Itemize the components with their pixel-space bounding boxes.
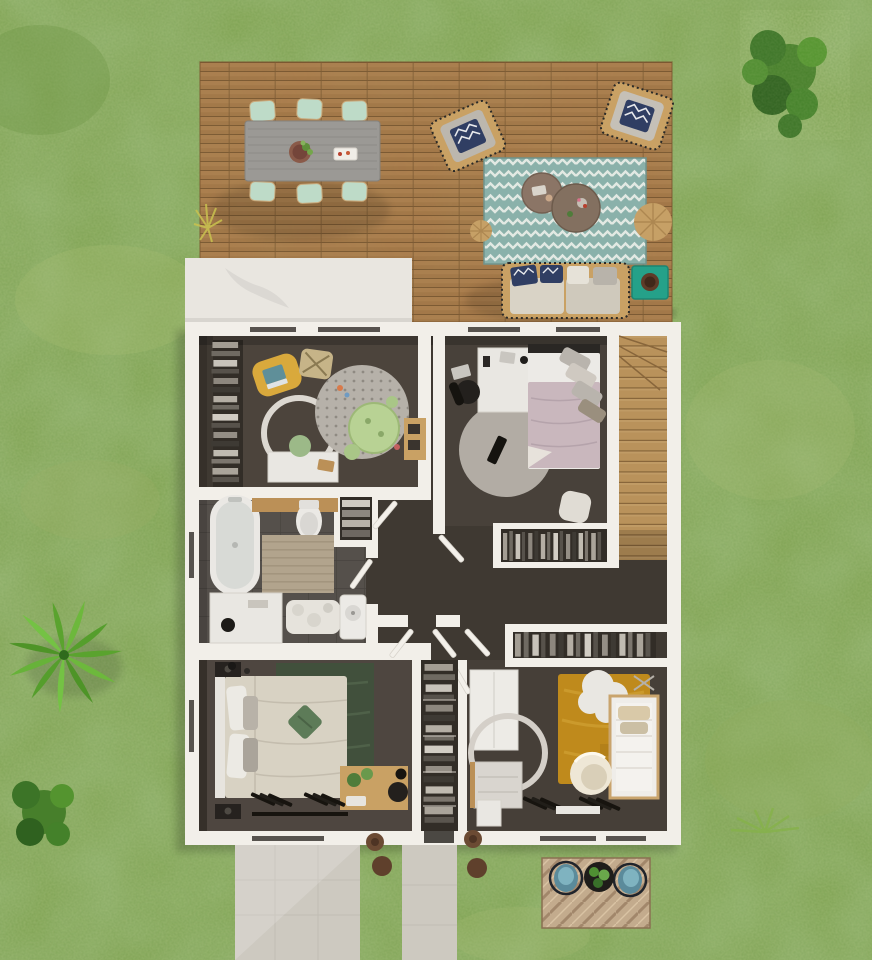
concrete-path-narrow — [402, 845, 457, 960]
bush-top-right — [740, 10, 850, 140]
entry-door-gap — [424, 831, 454, 843]
outdoor-sofa — [502, 263, 629, 318]
dining-set — [245, 98, 380, 203]
house — [176, 258, 681, 852]
desk-chair — [289, 435, 311, 457]
patio-planter — [584, 862, 614, 892]
egg-chair — [570, 753, 612, 795]
serving-tray — [334, 148, 357, 160]
wardrobe-upper — [493, 523, 609, 568]
concrete-path-wide — [235, 845, 360, 960]
washbasin — [340, 595, 366, 639]
scene-canvas — [0, 0, 872, 960]
floor-plan-render — [0, 0, 872, 960]
patio-chair — [614, 864, 646, 896]
desk — [478, 348, 536, 412]
bed — [215, 676, 347, 798]
bath-mat — [262, 535, 334, 593]
roof-section — [185, 258, 412, 322]
stool — [344, 444, 360, 460]
pillow — [243, 696, 258, 730]
pouf — [634, 203, 672, 241]
black-chair — [388, 782, 408, 802]
laptop — [499, 351, 515, 364]
hall-console — [404, 418, 426, 460]
walk-in-closet — [421, 660, 458, 831]
pillow — [620, 722, 648, 734]
stool — [386, 396, 398, 408]
staircase — [619, 336, 667, 560]
wooden-desk — [340, 766, 408, 810]
patio-chair — [550, 862, 582, 894]
bed — [528, 344, 608, 469]
patio — [542, 858, 650, 928]
pouf — [470, 220, 492, 242]
patterned-pouf — [298, 348, 334, 380]
pillow — [243, 738, 258, 772]
bin — [221, 618, 235, 632]
headboard — [215, 676, 225, 798]
cabinet — [477, 800, 501, 826]
plant — [361, 768, 373, 780]
vanity — [210, 593, 282, 643]
coffee-table — [552, 184, 600, 232]
teal-side-table — [632, 266, 668, 299]
wardrobe-lower — [505, 624, 667, 667]
pillow — [618, 706, 650, 720]
plant — [347, 773, 361, 787]
fluffy-rug — [286, 600, 340, 634]
linen-closet — [334, 490, 378, 547]
